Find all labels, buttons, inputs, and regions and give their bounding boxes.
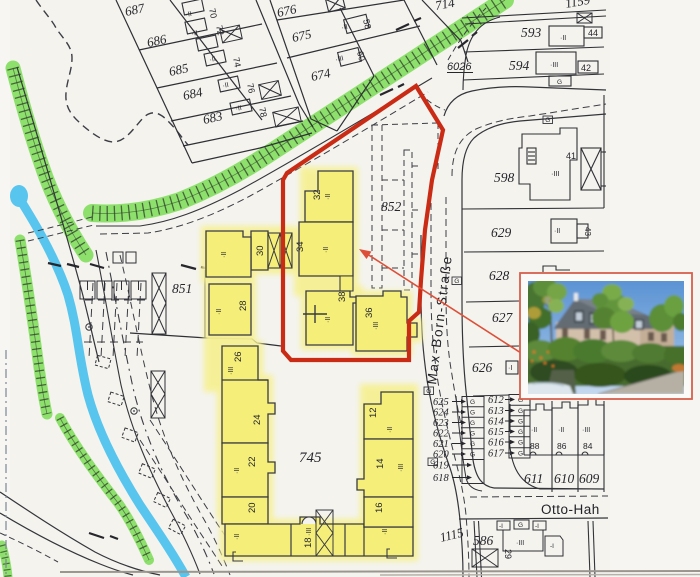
svg-text:22: 22 [247, 456, 258, 467]
svg-text:·II: ·II [221, 252, 228, 258]
svg-text:43: 43 [583, 227, 592, 236]
svg-text:70: 70 [207, 7, 219, 19]
svg-text:G: G [518, 451, 523, 458]
svg-text:619: 619 [433, 461, 450, 472]
svg-text:G: G [470, 441, 475, 448]
svg-text:-I: -I [535, 523, 539, 530]
svg-text:28: 28 [238, 300, 249, 311]
svg-text:G: G [470, 431, 475, 438]
svg-text:·II: ·II [234, 468, 241, 474]
svg-text:G: G [557, 79, 562, 86]
svg-text:·I: ·I [508, 365, 512, 372]
svg-text:74: 74 [231, 56, 243, 68]
svg-text:32: 32 [312, 189, 323, 200]
svg-text:88: 88 [530, 441, 540, 451]
svg-text:·II: ·II [325, 317, 332, 323]
svg-text:G: G [518, 419, 523, 426]
svg-text:86: 86 [557, 441, 567, 451]
svg-text:613: 613 [488, 406, 504, 417]
svg-text:610: 610 [554, 471, 575, 486]
svg-text:·II: ·II [234, 534, 241, 540]
svg-text:624: 624 [433, 408, 450, 419]
svg-text:621: 621 [433, 439, 449, 450]
svg-text:617: 617 [488, 449, 505, 460]
svg-text:G: G [518, 408, 523, 415]
svg-text:·II: ·II [531, 427, 537, 434]
svg-text:G: G [454, 278, 459, 285]
svg-text:612: 612 [488, 395, 505, 406]
svg-text:78: 78 [257, 106, 269, 118]
svg-text:41: 41 [566, 151, 576, 161]
svg-text:84: 84 [583, 441, 593, 451]
svg-text:·II: ·II [325, 194, 332, 200]
svg-text:26: 26 [233, 351, 244, 362]
svg-text:629: 629 [491, 225, 512, 240]
svg-text:12: 12 [368, 407, 379, 418]
svg-text:G: G [470, 410, 475, 417]
svg-text:745: 745 [299, 450, 322, 466]
svg-text:598: 598 [494, 170, 515, 185]
svg-text:·II: ·II [387, 427, 394, 433]
svg-text:616: 616 [488, 438, 505, 449]
svg-text:30: 30 [255, 245, 266, 256]
svg-text:18: 18 [303, 537, 314, 548]
svg-text:G: G [426, 388, 431, 395]
svg-text:·II: ·II [323, 247, 330, 253]
svg-text:44: 44 [588, 28, 598, 38]
svg-text:609: 609 [579, 471, 600, 486]
svg-text:·III: ·III [306, 528, 313, 536]
svg-text:·II: ·II [216, 309, 223, 315]
svg-text:Otto-Hah: Otto-Hah [541, 502, 600, 517]
svg-text:611: 611 [524, 471, 543, 486]
svg-text:852: 852 [381, 199, 402, 214]
svg-text:34: 34 [295, 241, 306, 252]
svg-text:625: 625 [433, 397, 449, 408]
svg-text:626: 626 [472, 360, 493, 375]
svg-text:618: 618 [433, 473, 450, 484]
svg-text:G: G [518, 429, 523, 436]
svg-text:6026: 6026 [447, 61, 472, 73]
svg-text:615: 615 [488, 427, 504, 438]
svg-text:42: 42 [581, 63, 591, 73]
svg-text:623: 623 [433, 418, 449, 429]
svg-text:G: G [470, 399, 475, 406]
svg-text:14: 14 [375, 458, 386, 469]
svg-text:·III: ·III [550, 62, 558, 69]
svg-text:622: 622 [433, 429, 450, 440]
svg-text:·III: ·III [516, 540, 524, 547]
svg-text:24: 24 [252, 414, 263, 425]
svg-text:16: 16 [374, 502, 385, 513]
svg-text:851: 851 [172, 281, 192, 296]
svg-text:G: G [470, 420, 475, 427]
svg-text:·III: ·III [582, 427, 590, 434]
svg-text:72: 72 [214, 24, 226, 36]
svg-text:·III: ·III [398, 464, 405, 472]
svg-text:·III: ·III [228, 367, 235, 375]
svg-text:·III: ·III [373, 322, 380, 330]
svg-text:628: 628 [489, 268, 510, 283]
svg-text:620: 620 [433, 450, 450, 461]
svg-text:36: 36 [364, 307, 375, 318]
svg-text:G: G [518, 440, 523, 447]
svg-text:-I: -I [550, 543, 554, 550]
svg-text:G: G [518, 522, 523, 529]
svg-text:G: G [470, 452, 475, 459]
svg-text:·II: ·II [554, 228, 560, 235]
svg-text:38: 38 [337, 291, 348, 302]
svg-text:627: 627 [492, 310, 514, 325]
svg-text:593: 593 [521, 25, 542, 40]
svg-text:614: 614 [488, 417, 505, 428]
svg-text:594: 594 [509, 58, 530, 73]
svg-text:-I: -I [499, 523, 503, 530]
svg-text:20: 20 [247, 502, 258, 513]
svg-text:29: 29 [503, 549, 513, 559]
svg-text:·II: ·II [558, 427, 564, 434]
svg-text:·II: ·II [382, 529, 389, 535]
svg-text:·III: ·III [551, 169, 560, 178]
svg-text:·II: ·II [560, 35, 566, 42]
svg-text:586: 586 [473, 533, 494, 548]
svg-text:76: 76 [245, 82, 257, 94]
